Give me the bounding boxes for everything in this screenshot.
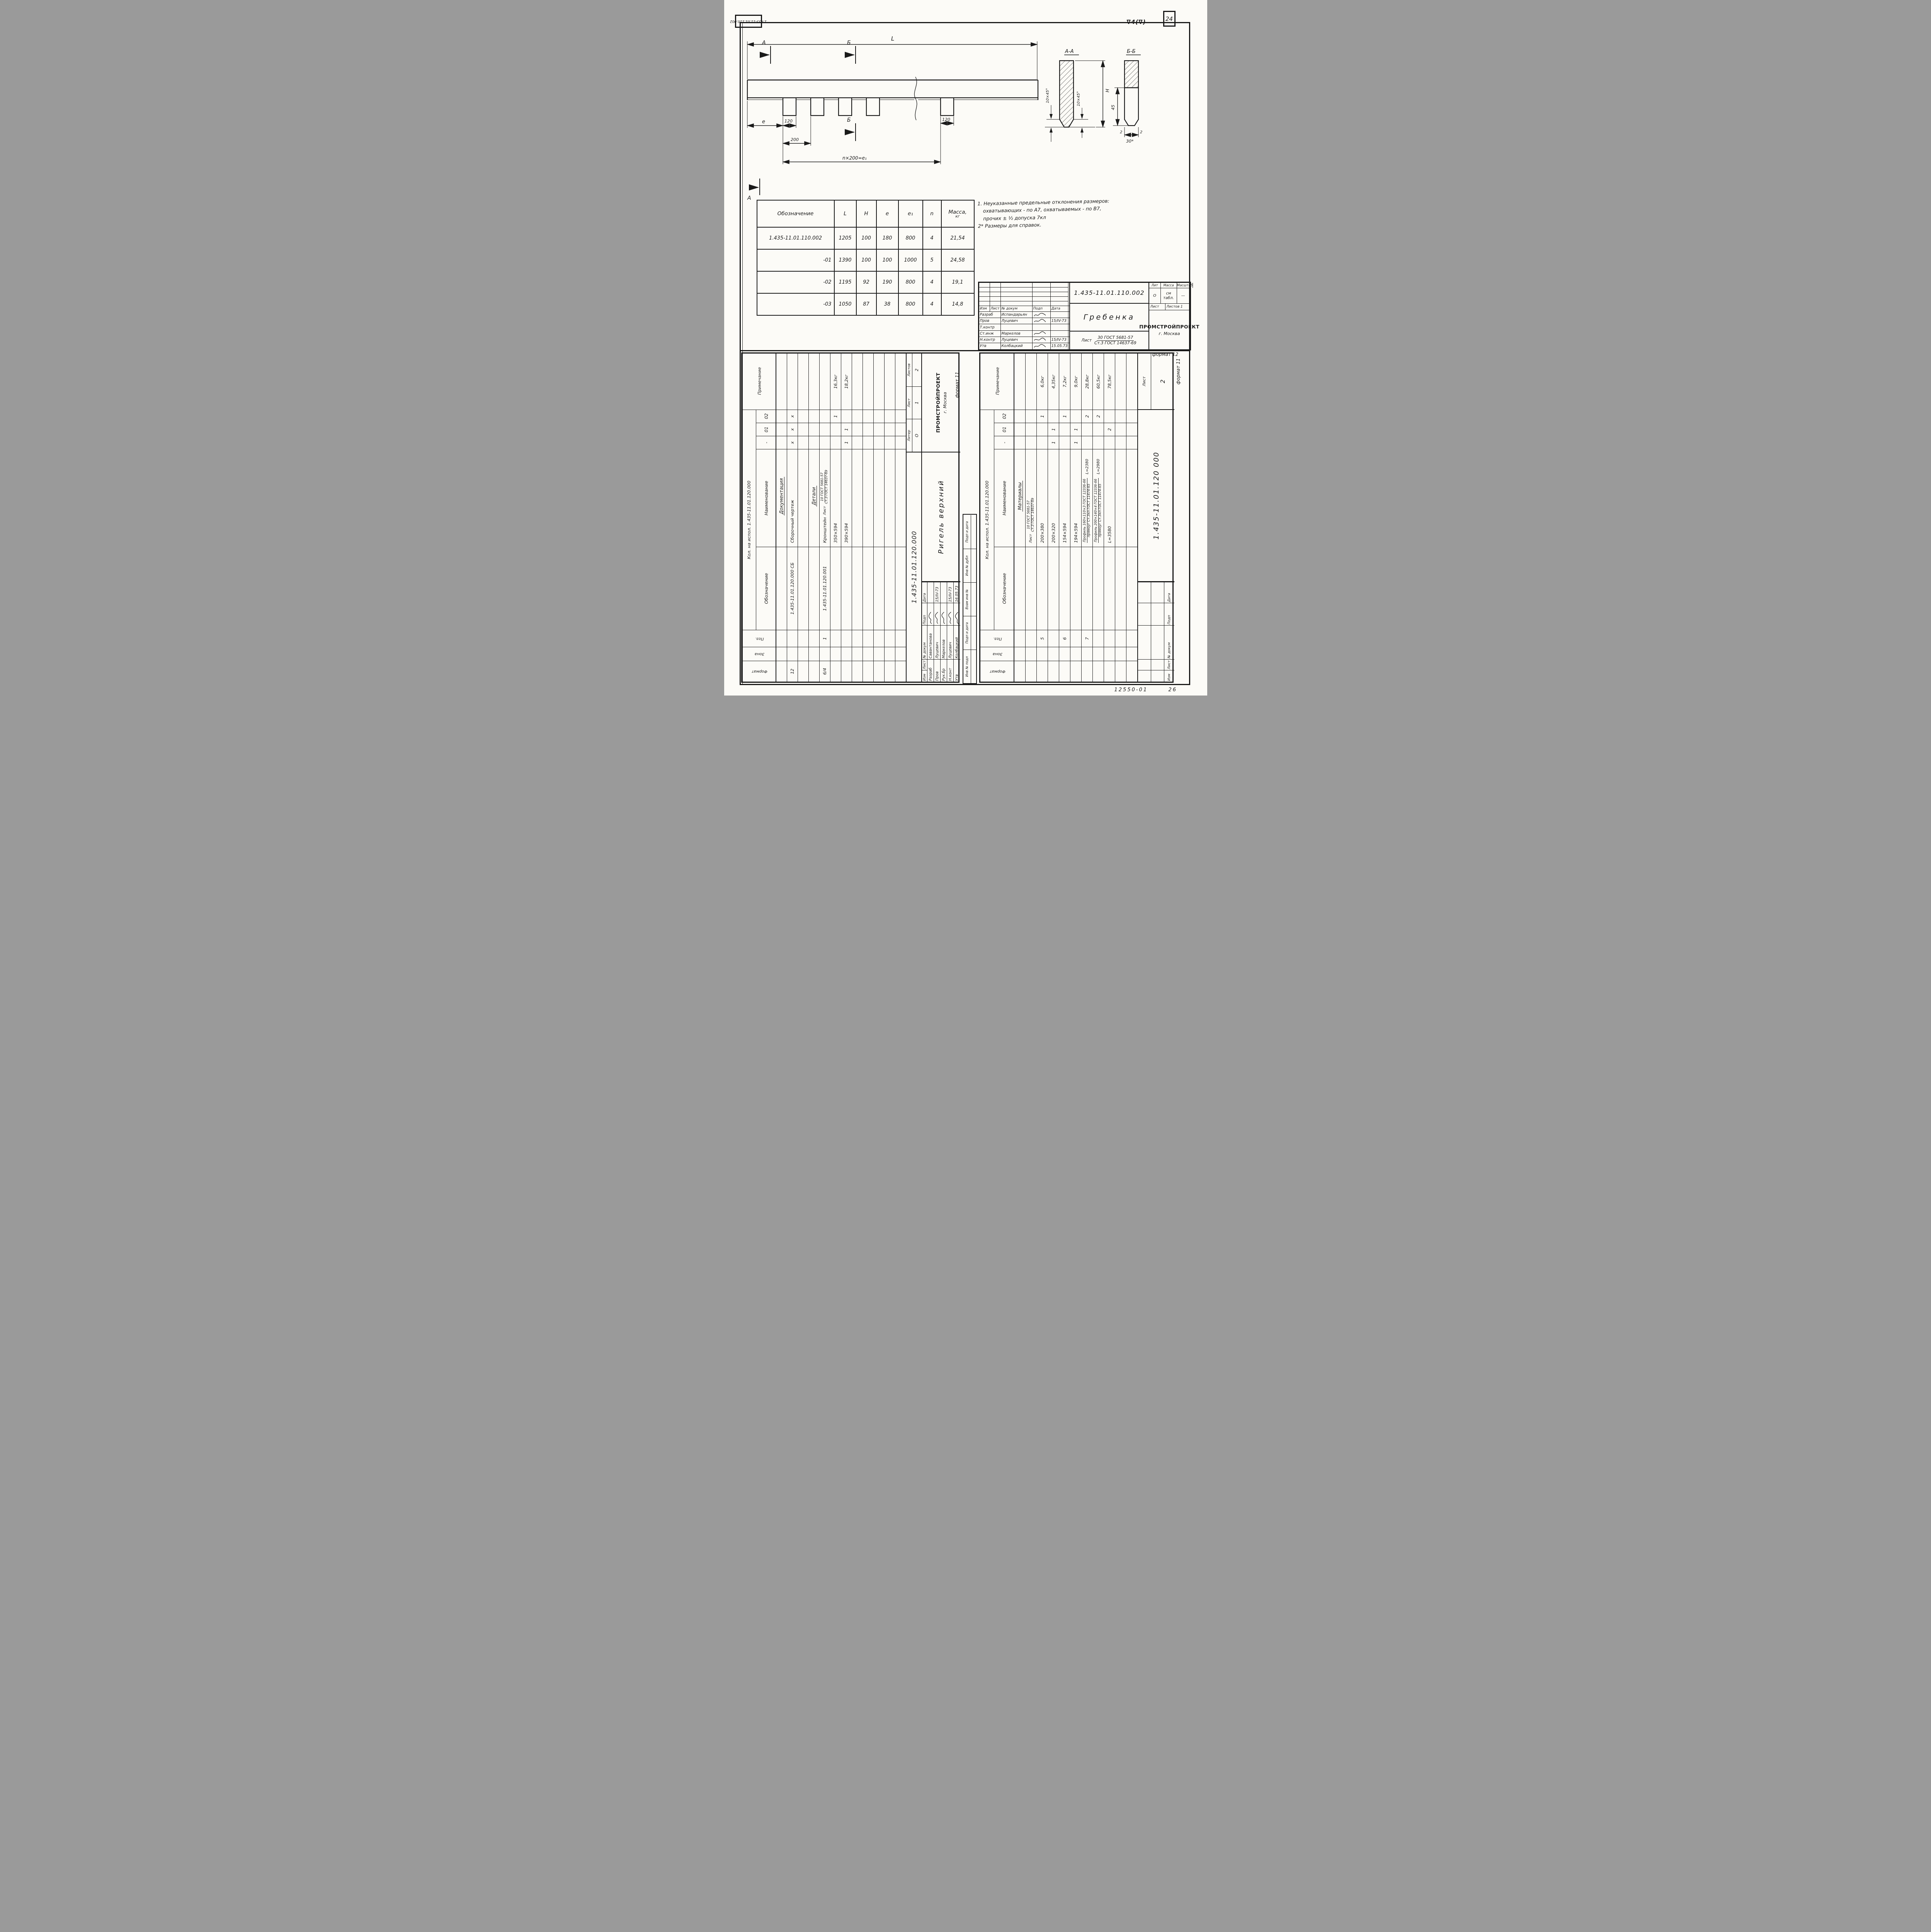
- dim-table-cell: 92: [856, 271, 876, 293]
- signature: [942, 612, 945, 624]
- stamp-cell: Инв № дубл: [963, 549, 976, 582]
- spec-section-row: Материалы: [1014, 354, 1026, 682]
- spec-header: Формат Зона Поз. Кол. на испол. 1.435-11…: [742, 354, 776, 682]
- spec-doc-number: 1.435-11.01.120 000: [1138, 409, 1174, 581]
- col-note: Примечание: [742, 352, 776, 410]
- dim-table-cell: -02: [757, 271, 834, 293]
- bottom-right-number: 26: [1169, 687, 1177, 693]
- sig-row: ПровЛуцевич 15/IV-73: [979, 318, 1070, 324]
- dim-table-cell: 1000: [898, 249, 923, 271]
- dim-30: 30*: [1126, 139, 1134, 144]
- col-q-01: 01: [756, 423, 776, 436]
- spec-row: Лист10 ГОСТ 5681-57Ст.3 ГОСТ 14637-69: [1026, 354, 1037, 682]
- chamfer-label-1: 10×45°: [1046, 88, 1050, 103]
- stamp-cell-label: Подп и дата: [963, 515, 971, 549]
- dim-L: L: [891, 35, 894, 42]
- stamp-cell-label: Инв № дубл: [963, 549, 971, 582]
- col-n: n: [923, 200, 941, 227]
- spec-row: [852, 354, 863, 682]
- spec-row: 6154×59417,2кг: [1059, 354, 1070, 682]
- dim-table-cell: 4: [923, 227, 941, 249]
- part-title: Гребенка: [1070, 304, 1148, 332]
- section-mark-B-top: Б: [847, 40, 851, 46]
- dim-table-cell: 1050: [834, 293, 856, 315]
- section-BB-title: Б-Б: [1127, 49, 1136, 54]
- usage-header: Кол. на испол. 1.435-11.01.120.000: [742, 410, 756, 630]
- spec-title: Ригель верхний: [922, 452, 960, 581]
- spec-rows: Документация121.435-11.01.120.000 СБСбор…: [776, 354, 906, 682]
- stamp-cell-label: Подп и дата: [963, 616, 971, 650]
- sig-row: УтвКолбацкий16.05.73: [954, 582, 960, 682]
- spec-row: 121.435-11.01.120.000 СБСборочный чертеж…: [787, 354, 798, 682]
- stamp-cell: Инв № подл: [963, 650, 976, 683]
- spec-rows: МатериалыЛист10 ГОСТ 5681-57Ст.3 ГОСТ 14…: [1014, 354, 1138, 682]
- col-name: Наименование: [994, 449, 1014, 547]
- lit-header: ЛитМассаМасштаб: [1149, 283, 1190, 288]
- section-AA-title: А-А: [1065, 49, 1074, 54]
- dim-2-left: 2: [1120, 130, 1122, 134]
- sig-row: Н.контрЛуцевич 15/IV-73: [979, 337, 1070, 343]
- stamp-cell: Взам инв №: [963, 582, 976, 616]
- dim-table-cell: 1205: [834, 227, 856, 249]
- dim-pitch: n×200=e₁: [842, 155, 867, 161]
- dim-e: e: [762, 119, 765, 125]
- dim-table-cell: 4: [923, 293, 941, 315]
- spec-title-block: 1.435-11.01.120.000 ЛитерЛистЛистов О12 …: [906, 354, 960, 682]
- spec-header: Формат Зона Поз. Кол. на испол. 1.435-11…: [980, 354, 1014, 682]
- dim-table-cell: 180: [876, 227, 898, 249]
- dim-120-left: 120: [784, 119, 793, 124]
- lit-values: О см табл. —: [1149, 288, 1190, 304]
- col-poz: Поз.: [993, 636, 1001, 641]
- organization: ПРОМСТРОЙПРОЕКТ г. Москва: [1149, 310, 1190, 349]
- sig-header: ИзмЛист № докумПодп Дата: [979, 306, 1070, 312]
- sig-row: Н.контЛуцевич15/IV-73: [947, 582, 954, 682]
- section-mark-A-bottom: А: [747, 195, 751, 201]
- dim-H: H: [1105, 89, 1110, 92]
- dim-table-cell: 21,54: [941, 227, 974, 249]
- dim-table-cell: 19,1: [941, 271, 974, 293]
- spec-section-row: Детали: [809, 354, 820, 682]
- massa-value: см табл.: [1161, 288, 1177, 303]
- dim-table-cell: 100: [856, 249, 876, 271]
- spec-row: L=3580278,5кг: [1104, 354, 1115, 682]
- col-poz: Поз.: [755, 636, 763, 641]
- dim-2-right: 2: [1140, 130, 1142, 134]
- spec-row: 390×5941118,2кг: [841, 354, 852, 682]
- dim-table-row: -0113901001001000524,58: [757, 249, 974, 271]
- org-city: г. Москва: [1159, 331, 1180, 336]
- col-format: Формат: [751, 669, 767, 673]
- signature: [1034, 319, 1046, 322]
- dim-table-cell: 1.435-11.01.110.002: [757, 227, 834, 249]
- dim-table-cell: 24,58: [941, 249, 974, 271]
- dim-table-row: -0310508738800414,8: [757, 293, 974, 315]
- sig-row: ПровЛуцевич15/IV-73: [934, 582, 941, 682]
- col-q-02: 02: [994, 410, 1014, 423]
- spec-row: [798, 354, 809, 682]
- col-q-01: 01: [994, 423, 1014, 436]
- sig-header: ИзмЛист№ докумПодпДата: [922, 582, 927, 682]
- dim-table-body: 1.435-11.01.110.0021205100180800421,54-0…: [757, 227, 974, 315]
- signature: [955, 612, 958, 624]
- col-designation: Обозначение: [756, 547, 776, 630]
- spec-row: 5200×38016,0кг: [1037, 354, 1048, 682]
- col-massa: Масса,кг: [941, 200, 974, 227]
- comb-teeth: [783, 98, 954, 116]
- chamfer-label-2: 10×45°: [1077, 91, 1081, 106]
- sig-row: Рук.брМаркелов: [941, 582, 947, 682]
- dim-120-right: 120: [942, 117, 950, 122]
- dim-table-cell: 38: [876, 293, 898, 315]
- section-BB: Б-Б 45 30* 2 2: [1111, 49, 1142, 144]
- signature: [1034, 313, 1046, 316]
- notes: 1. Неуказанные предельные отклонения раз…: [977, 196, 1183, 230]
- col-e1: e₁: [898, 200, 923, 227]
- col-e: e: [876, 200, 898, 227]
- dim-table-header: Обозначение L H e e₁ n Масса,кг: [757, 200, 974, 227]
- col-zone: Зона: [754, 652, 764, 656]
- spec-row: 200×320114,35кг: [1048, 354, 1059, 682]
- archive-number: 12550-01: [1114, 687, 1148, 693]
- format-note-11-left: формат 11: [954, 372, 960, 398]
- section-mark-B-bottom: Б: [847, 117, 851, 123]
- signature: [1034, 338, 1046, 340]
- dim-table-cell: 100: [876, 249, 898, 271]
- spec-row: [874, 354, 885, 682]
- dim-table-cell: 4: [923, 271, 941, 293]
- dim-table-cell: 87: [856, 293, 876, 315]
- col-name: Наименование: [756, 449, 776, 547]
- liter-value: О: [1149, 288, 1161, 303]
- spec-row: 6/411.435-11.01.120.001КронштейнЛист10 Г…: [820, 354, 830, 682]
- signature: [1034, 332, 1046, 335]
- spec-row: [863, 354, 874, 682]
- section-AA: А-А 10×45° 10×45° H: [1045, 49, 1110, 142]
- dim-table-cell: 190: [876, 271, 898, 293]
- spec-sheet-2: Формат Зона Поз. Кол. на испол. 1.435-11…: [979, 352, 1174, 683]
- sig-row: РазрабСавантанова: [927, 582, 934, 682]
- comb-drawing: L А Б Б А e 120 200 120 n×200=e₁ А-А 10×…: [740, 22, 1190, 201]
- spec-row: 7Профиль 160×110×3 ГОСТ 12336-66прямоуг …: [1082, 354, 1093, 682]
- sig-header: ИзмЛист№ докумПодпДата: [1164, 582, 1174, 682]
- break-line: [914, 77, 917, 120]
- dim-table-cell: 800: [898, 271, 923, 293]
- col-designation: Обозначение: [757, 200, 834, 227]
- dim-table-row: 1.435-11.01.110.0021205100180800421,54: [757, 227, 974, 249]
- title-block: ИзмЛист № докумПодп Дата РазрабИспандарь…: [978, 282, 1191, 350]
- format-note-11-right: формат 11: [1176, 358, 1181, 384]
- dim-table-row: -02119592190800419,1: [757, 271, 974, 293]
- dim-45: 45: [1111, 105, 1116, 110]
- dim-200: 200: [791, 137, 799, 142]
- dim-table-cell: 800: [898, 293, 923, 315]
- continuation-title-block: ИзмЛист№ докумПодпДата 1.435-11.01.120 0…: [1138, 354, 1174, 682]
- list-row: ЛистЛистов 1: [1149, 304, 1190, 310]
- drawing-sheet: 1.435-11.01.110.002 ∇4(∇) 24: [724, 0, 1207, 696]
- stamp-cell: Подп и дата: [963, 515, 976, 549]
- col-q-02: 02: [756, 410, 776, 423]
- col-L: L: [834, 200, 856, 227]
- revision-reserve-grid: [979, 283, 1070, 306]
- list-label: Лист: [1138, 354, 1151, 409]
- col-zone: Зона: [992, 652, 1002, 656]
- inventory-stamp-strip: Инв № подлПодп и датаВзам инв №Инв № дуб…: [963, 514, 977, 684]
- dim-table-cell: -01: [757, 249, 834, 271]
- dim-table-cell: 5: [923, 249, 941, 271]
- stamp-cell: Подп и дата: [963, 616, 976, 650]
- stamp-cell-label: Инв № подл: [963, 650, 971, 683]
- org-name: ПРОМСТРОЙПРОЕКТ: [1139, 324, 1199, 330]
- comb-profile: [747, 41, 1038, 195]
- col-designation: Обозначение: [994, 547, 1014, 630]
- dim-table-cell: 1195: [834, 271, 856, 293]
- dim-table-cell: 1390: [834, 249, 856, 271]
- signature: [935, 612, 938, 624]
- dim-table-cell: 800: [898, 227, 923, 249]
- spec-row: [1126, 354, 1138, 682]
- stamp-cell-label: Взам инв №: [963, 583, 971, 616]
- signature: [1034, 344, 1046, 347]
- doc-number: 1.435-11.01.110.002: [1070, 283, 1148, 304]
- dimension-table: Обозначение L H e e₁ n Масса,кг 1.435-11…: [757, 200, 975, 316]
- dim-table-cell: 14,8: [941, 293, 974, 315]
- organization: ПРОМСТРОЙПРОЕКТг. Москва: [922, 354, 960, 452]
- material-spec: Лист 30 ГОСТ 5681-57Ст.3 ГОСТ 14637-69: [1070, 332, 1148, 349]
- spec-row: Профиль 200×140×4 ГОСТ 12336-66прямоуг С…: [1093, 354, 1104, 682]
- spec-row: 194×594119,0кг: [1070, 354, 1082, 682]
- spec-row: [1115, 354, 1126, 682]
- spec-sheet-1: Формат Зона Поз. Кол. на испол. 1.435-11…: [741, 352, 960, 683]
- sig-row: РазрабИспандарьян: [979, 312, 1070, 318]
- page-number: 24: [1165, 15, 1173, 22]
- dim-table-cell: -03: [757, 293, 834, 315]
- col-format: Формат: [989, 669, 1005, 673]
- dim-table-cell: 100: [856, 227, 876, 249]
- sig-row: Т.контр: [979, 324, 1070, 330]
- sig-row: УтвКолбацкий 15.05.73: [979, 343, 1070, 349]
- col-q-base: -: [994, 436, 1014, 449]
- section-mark-A-top: А: [762, 40, 766, 46]
- liter-list-listov: ЛитерЛистЛистов О12: [907, 354, 921, 452]
- sig-row: Ст.инжМаркелов: [979, 331, 1070, 337]
- list-value: 2: [1151, 354, 1174, 409]
- signature: [929, 612, 931, 624]
- spec-doc-number: 1.435-11.01.120.000: [907, 452, 921, 682]
- col-q-base: -: [756, 436, 776, 449]
- col-note: Примечание: [980, 352, 1014, 410]
- masshtab-value: —: [1177, 288, 1190, 303]
- spec-row: [895, 354, 906, 682]
- col-H: H: [856, 200, 876, 227]
- signature: [948, 612, 951, 624]
- usage-header: Кол. на испол. 1.435-11.01.120.000: [980, 410, 994, 630]
- spec-row: 350×594116,3кг: [830, 354, 841, 682]
- spec-section-row: Документация: [776, 354, 787, 682]
- spec-row: [885, 354, 895, 682]
